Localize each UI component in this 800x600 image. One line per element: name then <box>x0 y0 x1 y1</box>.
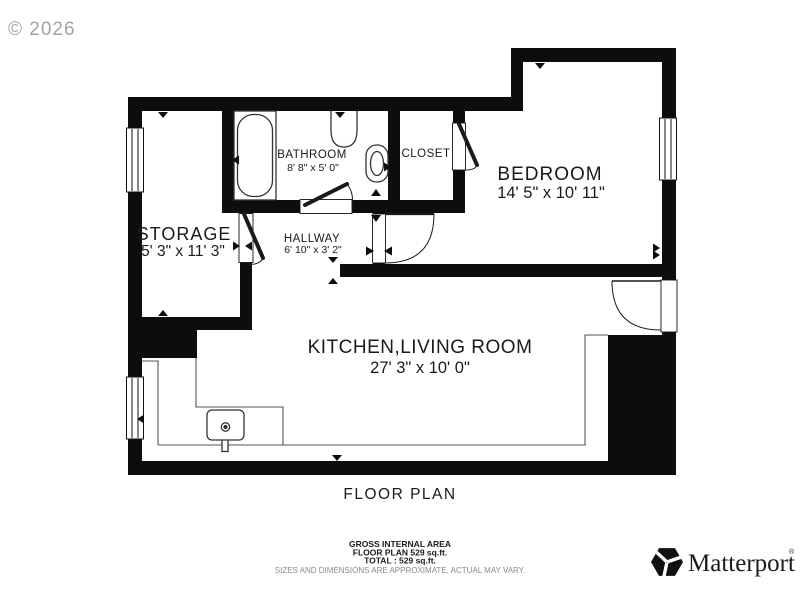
room-dims-bathroom: 8' 8" x 5' 0" <box>287 162 339 174</box>
floor-plan-page: STORAGE 5' 3" x 11' 3" BATHROOM 8' 8" x … <box>0 0 800 600</box>
bathroom-sink-icon <box>331 111 357 147</box>
arrow-icon <box>328 257 338 263</box>
arrow-icon <box>328 278 338 284</box>
room-labels: STORAGE 5' 3" x 11' 3" BATHROOM 8' 8" x … <box>137 148 605 377</box>
room-dims-bedroom: 14' 5" x 10' 11" <box>497 184 605 202</box>
window-kitchen-left <box>127 377 144 439</box>
room-label-closet: CLOSET <box>401 148 450 160</box>
window-storage-left <box>127 128 144 192</box>
bathtub-icon <box>234 111 276 200</box>
arrow-icon <box>158 112 168 118</box>
room-label-storage: STORAGE <box>137 224 232 244</box>
area-line2: TOTAL : 529 sq.ft. <box>364 556 436 566</box>
room-dims-storage: 5' 3" x 11' 3" <box>141 243 225 260</box>
plan-title: FLOOR PLAN <box>343 486 456 503</box>
matterport-logo-icon <box>651 548 683 579</box>
room-dims-kitchen-living: 27' 3" x 10' 0" <box>370 359 470 377</box>
footer-text: FLOOR PLAN GROSS INTERNAL AREA FLOOR PLA… <box>275 486 525 575</box>
brand-registered-mark: ® <box>789 548 795 556</box>
room-label-kitchen-living: KITCHEN,LIVING ROOM <box>308 337 533 358</box>
disclaimer: SIZES AND DIMENSIONS ARE APPROXIMATE, AC… <box>275 566 525 575</box>
room-label-bathroom: BATHROOM <box>277 149 347 161</box>
arrow-icon <box>653 244 660 253</box>
window-bedroom-right <box>660 118 677 180</box>
arrow-icon <box>332 455 342 461</box>
copyright-watermark: © 2026 <box>8 19 76 40</box>
brand-wordmark: Matterport <box>688 550 795 577</box>
arrow-icon <box>653 251 660 260</box>
arrow-icon <box>535 63 545 69</box>
bedroom-door <box>385 214 434 263</box>
entry-door <box>612 281 661 330</box>
bedroom-door-opening <box>373 214 386 263</box>
arrow-icon <box>371 189 381 196</box>
floor-plan-svg: STORAGE 5' 3" x 11' 3" BATHROOM 8' 8" x … <box>0 0 800 600</box>
room-dims-hallway: 6' 10" x 3' 2" <box>284 244 342 256</box>
brand-logo: Matterport ® <box>651 548 795 579</box>
arrow-icon <box>158 310 168 316</box>
entry-door-opening <box>661 280 677 332</box>
room-label-bedroom: BEDROOM <box>497 164 602 185</box>
